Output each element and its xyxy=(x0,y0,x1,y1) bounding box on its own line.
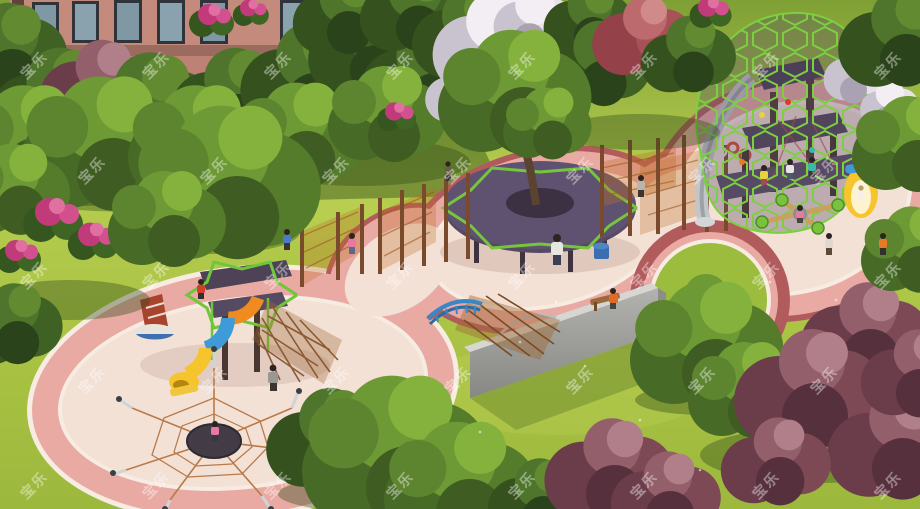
person xyxy=(760,165,768,185)
person xyxy=(786,159,794,179)
person xyxy=(637,175,645,197)
person xyxy=(796,205,804,223)
person xyxy=(197,279,205,299)
person xyxy=(879,233,887,255)
person xyxy=(825,233,833,255)
person xyxy=(858,185,864,200)
person xyxy=(283,229,291,250)
person xyxy=(348,233,356,254)
trash-bin xyxy=(593,243,609,259)
person xyxy=(211,421,219,441)
person xyxy=(808,157,816,177)
scene-canvas xyxy=(0,0,920,509)
playground-render-image: 宝乐宝乐宝乐宝乐宝乐宝乐宝乐宝乐宝乐宝乐宝乐宝乐宝乐宝乐宝乐宝乐宝乐宝乐宝乐宝乐… xyxy=(0,0,920,509)
